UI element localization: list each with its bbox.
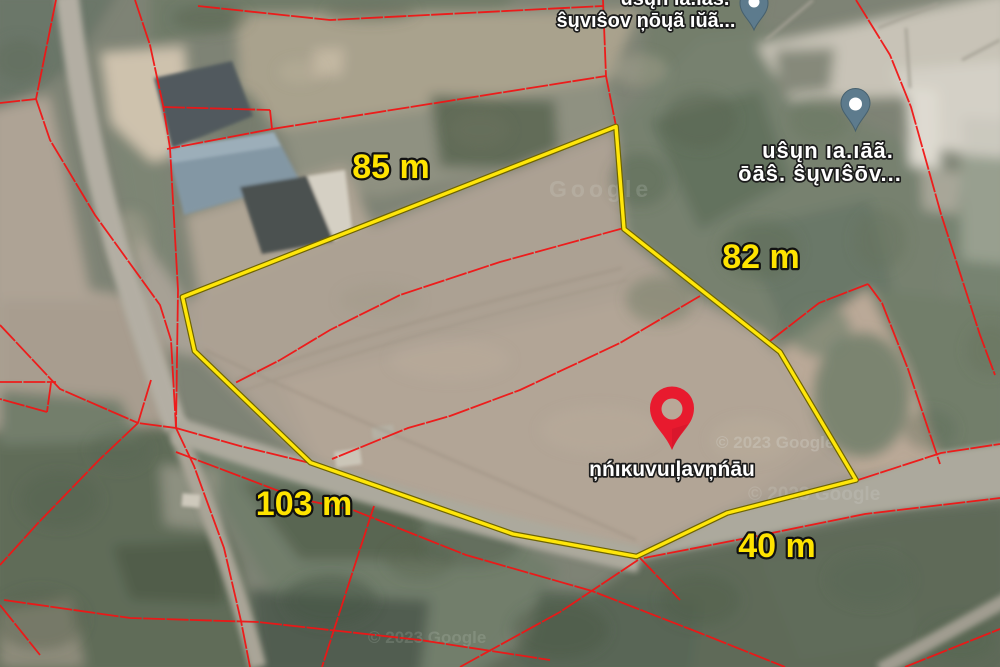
svg-text:© 2023 Google: © 2023 Google — [716, 433, 834, 452]
svg-text:Google: Google — [549, 176, 652, 202]
svg-text:uŝųn ıa.ıaŝ.: uŝųn ıa.ıaŝ. — [621, 0, 730, 10]
svg-text:82 m: 82 m — [722, 238, 800, 276]
svg-text:ōāŝ. ŝųvıŝōv...: ōāŝ. ŝųvıŝōv... — [738, 161, 902, 186]
svg-text:ŝųvıŝov ņōųã ıŭã...: ŝųvıŝov ņōųã ıŭã... — [557, 10, 736, 32]
svg-text:40 m: 40 m — [738, 527, 816, 565]
svg-text:ņńıĸuvuıļavņńāu: ņńıĸuvuıļavņńāu — [589, 458, 755, 481]
svg-text:85 m: 85 m — [352, 148, 430, 186]
svg-text:© 2023 Google: © 2023 Google — [368, 628, 486, 647]
svg-text:uŝųn ıa.ıāã.: uŝųn ıa.ıāã. — [762, 138, 894, 163]
svg-text:103 m: 103 m — [256, 485, 352, 523]
